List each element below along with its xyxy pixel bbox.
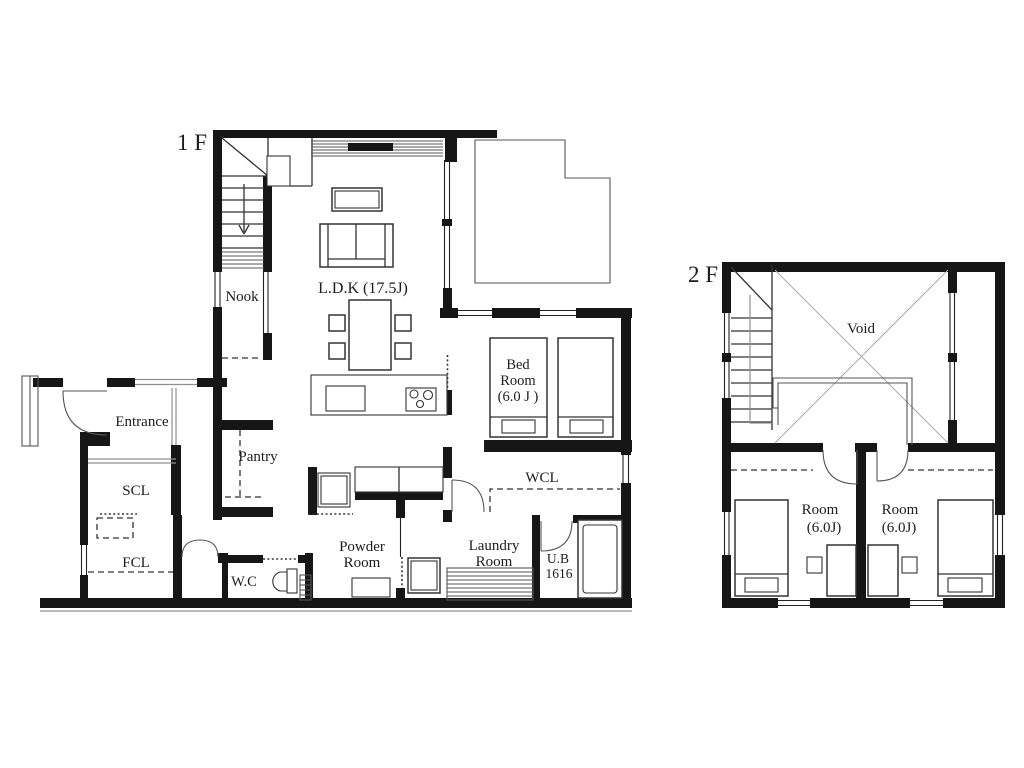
label-void: Void [847, 321, 876, 337]
room-door-icon [877, 450, 908, 481]
label-scl: SCL [122, 483, 150, 499]
dining-set-icon [329, 300, 411, 370]
label-laundry-2: Room [476, 554, 513, 570]
label-fcl: FCL [122, 555, 150, 571]
double-swing-door-icon [182, 540, 218, 557]
bed-icon [735, 500, 788, 596]
label-room-left-2: (6.0J) [807, 520, 842, 536]
void-cross-lines [775, 270, 948, 443]
label-powder-1: Powder [339, 539, 385, 555]
wcl-door-icon [452, 480, 484, 512]
label-room-left-1: Room [802, 502, 839, 518]
ub-door-icon [541, 521, 572, 551]
wcl-closet-dashed [490, 489, 620, 512]
washbasin-counter-icon [352, 578, 390, 597]
label-bedroom-1: Bed [506, 357, 530, 373]
label-wcl: WCL [525, 470, 558, 486]
bathtub-icon [578, 520, 622, 598]
sofa-icon [320, 224, 393, 267]
room-door-icon [823, 450, 857, 484]
floor-1f: 1 F Nook L.D.K (17.5J) Entrance SCL FCL … [22, 130, 632, 611]
desk-icon [807, 545, 856, 596]
coffee-table-icon [332, 188, 382, 211]
label-nook: Nook [225, 289, 259, 305]
washing-machine-icon [408, 558, 440, 593]
tv-board-icon [311, 141, 443, 156]
label-floor2: 2 F [688, 262, 718, 287]
bed-icon [938, 500, 993, 596]
bed-icon [558, 338, 613, 437]
deck-outline [475, 140, 610, 283]
label-laundry-1: Laundry [469, 538, 520, 554]
label-ldk: L.D.K (17.5J) [318, 280, 408, 297]
stairs-down-arrow-icon [239, 184, 249, 234]
label-bedroom-3: (6.0 J ) [498, 389, 539, 405]
nook-bench-icon [222, 272, 268, 358]
label-bedroom-2: Room [500, 373, 536, 389]
laundry-counter-icon [447, 568, 533, 600]
kitchen-counter-icon [311, 375, 447, 415]
label-powder-2: Room [344, 555, 381, 571]
desk-icon [868, 545, 917, 596]
label-floor1: 1 F [177, 130, 207, 155]
toilet-icon [273, 569, 297, 593]
label-wc: W.C [231, 574, 257, 590]
void-railing [773, 378, 912, 445]
stairs-icon-2f [731, 265, 772, 430]
label-room-right-1: Room [882, 502, 919, 518]
kitchen-cabinet-icon [318, 467, 443, 507]
entrance-door-icon [63, 391, 107, 435]
label-pantry: Pantry [238, 449, 278, 465]
label-ub-1: U.B [547, 551, 569, 566]
label-ub-2: 1616 [546, 566, 573, 581]
label-entrance: Entrance [115, 414, 169, 430]
label-room-right-2: (6.0J) [882, 520, 917, 536]
floor-2f: 2 F Void Room (6.0J) Room (6.0J) [688, 262, 1005, 608]
floor-plan-drawing: 1 F Nook L.D.K (17.5J) Entrance SCL FCL … [0, 0, 1024, 768]
